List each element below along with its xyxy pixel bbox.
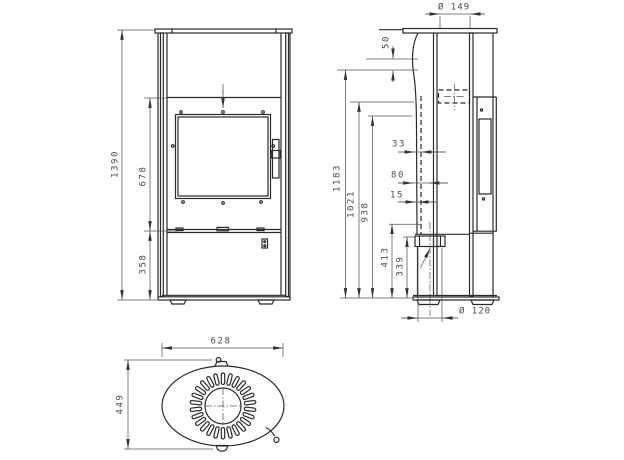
dim-front-overall-height: 1390	[112, 150, 121, 178]
handle-pendant	[274, 437, 279, 442]
side-dimensions	[337, 14, 485, 322]
top-view	[162, 358, 284, 452]
vent-slot	[226, 374, 232, 386]
dim-side-height-413: 413	[382, 246, 391, 267]
vent-slot	[244, 400, 256, 405]
vent-slot	[213, 426, 219, 438]
side-back-profile	[412, 33, 418, 234]
drawing-canvas: 1390 678 358 Ø 149 50 33 80 15 1183 1021…	[0, 0, 624, 460]
front-right-post	[286, 33, 289, 297]
side-foot-rear	[417, 300, 440, 305]
dim-air-inlet-diameter: Ø 120	[459, 308, 491, 317]
dim-side-height-938: 938	[362, 201, 371, 222]
dim-side-height-1021: 1021	[348, 190, 357, 218]
vent-slot	[221, 373, 224, 385]
front-view	[155, 29, 292, 304]
dim-rear-offset: 33	[392, 141, 406, 150]
vent-slot	[213, 374, 219, 386]
vent-slot	[190, 407, 202, 412]
dim-flue-diameter: Ø 149	[438, 4, 470, 13]
door-frame	[176, 115, 271, 199]
vent-slot	[244, 407, 256, 412]
dim-side-height-1183: 1183	[334, 164, 343, 192]
vent-slot	[190, 400, 202, 405]
vent-slot	[221, 428, 224, 440]
front-foot-left	[170, 300, 186, 304]
side-front-wall	[470, 33, 474, 296]
front-left-post	[161, 33, 164, 297]
dim-front-mid-section: 678	[140, 165, 149, 186]
door-screws	[172, 111, 275, 205]
dim-front-base: 358	[140, 253, 149, 274]
dim-liner-gap: 15	[390, 192, 404, 201]
vent-slot	[226, 426, 232, 438]
dim-side-height-339: 339	[397, 255, 406, 276]
dim-top-offset: 50	[383, 35, 392, 49]
side-top-plate	[403, 29, 497, 34]
stove-technical-drawing	[0, 0, 624, 460]
side-foot-front	[471, 300, 494, 305]
front-foot-right	[258, 300, 274, 304]
front-top-plate	[155, 29, 292, 33]
dim-top-width: 628	[210, 338, 231, 347]
side-door-glass	[479, 119, 491, 194]
top-dimensions	[124, 343, 283, 449]
dim-outlet-depth: 80	[391, 172, 405, 181]
dim-top-depth: 449	[117, 393, 126, 414]
door-glass	[178, 117, 268, 196]
